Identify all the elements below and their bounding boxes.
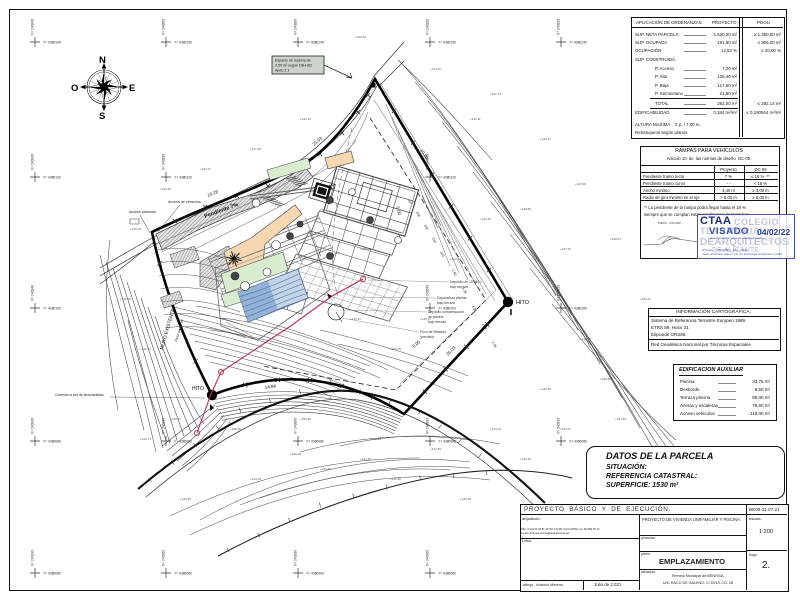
svg-text:14.84: 14.84 [264,383,276,390]
svg-text:N: N [99,55,106,66]
svg-text:X= 240260: X= 240260 [162,19,166,35]
svg-text:X= 240320: X= 240320 [557,285,561,301]
svg-text:X= 240300: X= 240300 [426,19,430,35]
svg-text:Espacio de reserva de: Espacio de reserva de [275,59,311,63]
svg-text:+141.33: +141.33 [370,437,381,441]
svg-text:+141.59: +141.59 [430,447,441,451]
svg-text:+145.48: +145.48 [320,467,331,471]
svg-text:Y= 4380060: Y= 4380060 [43,572,61,576]
svg-text:X= 240240: X= 240240 [31,285,35,301]
svg-text:+140.47: +140.47 [170,417,181,421]
svg-text:Y= 4380140: Y= 4380140 [174,41,192,45]
svg-text:+145.18: +145.18 [460,497,471,501]
svg-text:Apdo 2.1: Apdo 2.1 [275,69,289,73]
svg-text:Y= 4380140: Y= 4380140 [43,41,61,45]
svg-text:X= 240280: X= 240280 [294,550,298,566]
svg-text:Y= 4380140: Y= 4380140 [438,41,456,45]
svg-text:+146.61: +146.61 [480,217,491,221]
svg-text:X= 240320: X= 240320 [557,418,561,434]
svg-text:+135.86: +135.86 [390,477,401,481]
svg-text:X= 240240: X= 240240 [31,418,35,434]
svg-text:X= 240240: X= 240240 [31,154,35,170]
svg-text:+139.10: +139.10 [130,227,141,231]
svg-text:+145.33: +145.33 [350,317,361,321]
svg-text:Depósito compensación: Depósito compensación [428,310,464,314]
svg-text:S: S [99,111,105,122]
svg-text:+141.62: +141.62 [430,67,441,71]
svg-text:Y= 4380120: Y= 4380120 [438,176,456,180]
svg-text:+150.41: +150.41 [640,297,651,301]
svg-text:Y= 4380080: Y= 4380080 [43,440,61,444]
svg-text:23.93: 23.93 [311,135,323,146]
svg-text:145: 145 [423,224,429,231]
svg-text:Y= 4380120: Y= 4380120 [43,176,61,180]
svg-text:+136.33: +136.33 [520,457,531,461]
svg-text:+143.33: +143.33 [300,117,311,121]
svg-text:Y= 4380120: Y= 4380120 [174,176,192,180]
svg-text:16.28: 16.28 [207,189,220,198]
svg-text:5.00: 5.00 [411,339,421,349]
svg-text:+144.55: +144.55 [180,497,191,501]
svg-text:+141.31: +141.31 [140,347,151,351]
svg-text:Depuradora piscina: Depuradora piscina [437,296,467,300]
svg-text:Acceso peatonal: Acceso peatonal [129,210,156,214]
svg-text:Y= 4380100: Y= 4380100 [438,307,456,311]
svg-text:X= 240240: X= 240240 [31,19,35,35]
svg-text:bajo terraza: bajo terraza [437,301,455,305]
svg-text:X= 240300: X= 240300 [426,285,430,301]
svg-text:+142.69: +142.69 [290,452,301,456]
svg-text:Y= 4380100: Y= 4380100 [43,307,61,311]
svg-text:25.03: 25.03 [445,345,457,357]
svg-text:+135.36: +135.36 [120,297,131,301]
svg-text:X= 240280: X= 240280 [294,418,298,434]
svg-text:1.35: 1.35 [491,341,497,349]
svg-text:Pozo de filtración: Pozo de filtración [420,330,446,334]
svg-text:147: 147 [407,199,413,206]
svg-text:X= 240260: X= 240260 [162,154,166,170]
svg-text:+147.30: +147.30 [250,147,261,151]
svg-text:+151.13: +151.13 [490,92,501,96]
svg-text:X= 240260: X= 240260 [162,418,166,434]
svg-text:+149.41: +149.41 [540,137,551,141]
svg-text:+140.17: +140.17 [420,317,431,321]
svg-text:+144.71: +144.71 [140,437,151,441]
svg-text:5.00: 5.00 [395,206,403,216]
svg-text:1.40: 1.40 [451,269,457,277]
svg-text:X= 240260: X= 240260 [162,550,166,566]
svg-text:14.34: 14.34 [350,388,362,395]
svg-text:+135.80: +135.80 [360,247,371,251]
svg-text:+148.56: +148.56 [600,377,611,381]
svg-text:Depósito de 15.063 L: Depósito de 15.063 L [450,280,482,284]
svg-text:HITO: HITO [516,300,530,306]
svg-text:+147.84: +147.84 [615,417,626,421]
svg-text:+143.12: +143.12 [450,257,461,261]
svg-text:E: E [129,83,135,94]
svg-text:Y= 4380080: Y= 4380080 [569,440,587,444]
svg-text:Y= 4380140: Y= 4380140 [569,41,587,45]
svg-text:X= 240320: X= 240320 [557,19,561,35]
svg-text:+145.35: +145.35 [230,427,241,431]
svg-text:HITO: HITO [192,386,204,392]
svg-text:+147.79: +147.79 [560,247,571,251]
svg-text:X= 240300: X= 240300 [426,154,430,170]
svg-text:Y= 4380080: Y= 4380080 [306,440,324,444]
svg-text:+152.96: +152.96 [300,417,311,421]
svg-text:X= 240240: X= 240240 [31,550,35,566]
svg-text:Y= 4380060: Y= 4380060 [438,572,456,576]
svg-text:(previsto): (previsto) [420,335,434,339]
svg-text:Y= 4380080: Y= 4380080 [438,440,456,444]
svg-text:Y= 4380060: Y= 4380060 [306,572,324,576]
svg-text:143: 143 [439,251,445,258]
svg-text:+146.63: +146.63 [540,387,551,391]
svg-text:+140.28: +140.28 [580,337,591,341]
svg-text:144: 144 [431,237,437,244]
svg-text:+141.25: +141.25 [360,457,371,461]
svg-text:X= 240280: X= 240280 [294,19,298,35]
svg-text:+149.26: +149.26 [160,187,171,191]
svg-text:+136.30: +136.30 [575,182,586,186]
svg-text:Y= 4380080: Y= 4380080 [174,440,192,444]
svg-text:X= 240300: X= 240300 [426,418,430,434]
svg-text:Conexión a red de alcantarilla: Conexión a red de alcantarillado [55,393,104,397]
svg-text:+138.57: +138.57 [610,237,621,241]
svg-text:X= 240300: X= 240300 [426,550,430,566]
svg-text:1.38: 1.38 [471,305,477,313]
svg-text:+137.27: +137.27 [200,167,211,171]
svg-text:Acceso de vehiculos: Acceso de vehiculos [168,200,201,204]
svg-text:+138.83: +138.83 [520,207,531,211]
svg-text:+135.67: +135.67 [560,427,571,431]
svg-text:O: O [71,83,78,94]
svg-text:Y= 4380100: Y= 4380100 [569,307,587,311]
svg-text:146: 146 [415,211,421,218]
svg-text:+143.55: +143.55 [355,35,366,39]
svg-text:3,50 m² según DB-HS2: 3,50 m² según DB-HS2 [275,64,312,68]
svg-text:+142.11: +142.11 [470,117,481,121]
svg-text:+144.12: +144.12 [490,427,501,431]
svg-text:Y= 4380060: Y= 4380060 [174,572,192,576]
svg-text:Y= 4380140: Y= 4380140 [306,41,324,45]
svg-text:+150.70: +150.70 [390,347,401,351]
svg-text:+143.18: +143.18 [250,477,261,481]
